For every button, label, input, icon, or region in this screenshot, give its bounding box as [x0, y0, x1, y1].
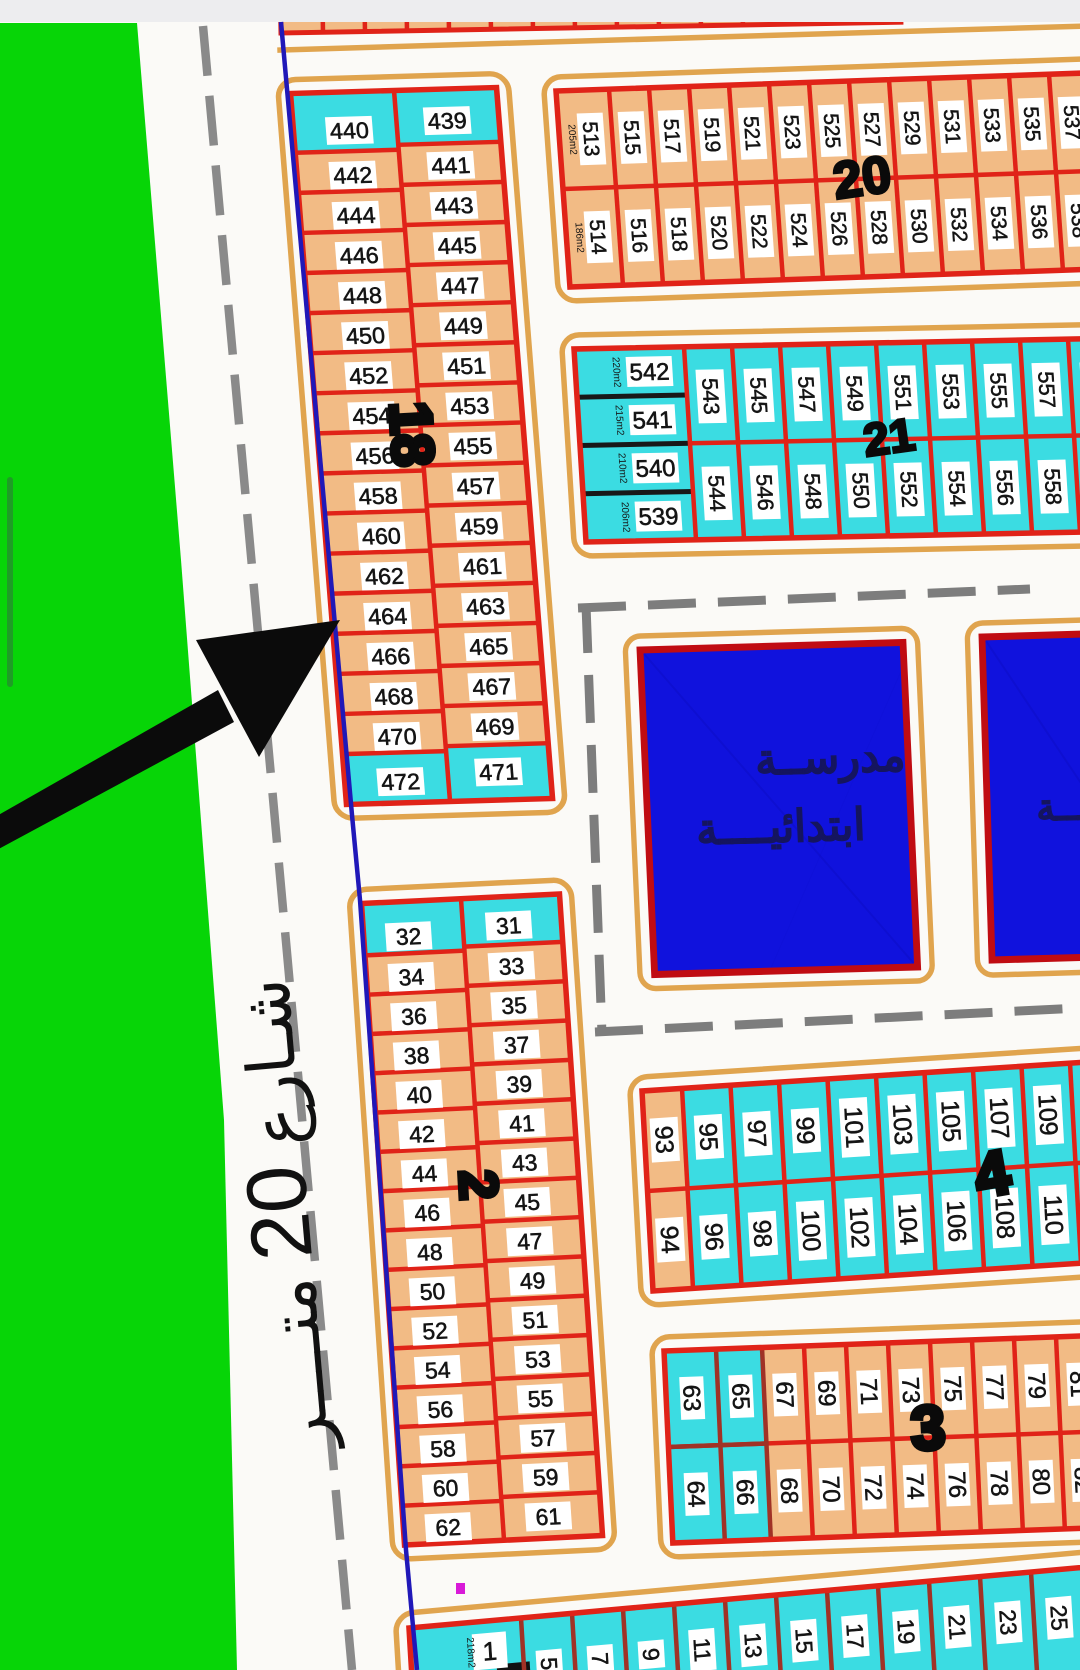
svg-text:533: 533	[979, 107, 1004, 143]
svg-text:96: 96	[699, 1222, 728, 1252]
svg-text:20: 20	[829, 145, 894, 210]
svg-text:462: 462	[364, 563, 405, 590]
svg-text:536: 536	[1026, 204, 1051, 240]
svg-text:529: 529	[899, 110, 924, 146]
svg-text:553: 553	[937, 373, 964, 410]
svg-text:70: 70	[817, 1475, 845, 1503]
svg-text:82: 82	[1069, 1466, 1080, 1494]
svg-text:218m2: 218m2	[464, 1637, 477, 1669]
svg-text:468: 468	[373, 683, 414, 710]
svg-text:41: 41	[508, 1110, 535, 1137]
svg-text:525: 525	[819, 113, 844, 149]
svg-text:555: 555	[985, 372, 1012, 409]
svg-text:47: 47	[516, 1228, 543, 1255]
svg-text:65: 65	[726, 1383, 754, 1411]
svg-text:3: 3	[909, 1393, 947, 1464]
svg-text:442: 442	[332, 162, 373, 189]
svg-text:52: 52	[421, 1317, 448, 1344]
svg-text:540: 540	[635, 455, 677, 483]
svg-text:455: 455	[452, 433, 493, 460]
svg-text:441: 441	[430, 152, 471, 179]
svg-text:21: 21	[943, 1613, 970, 1641]
svg-text:470: 470	[377, 723, 418, 750]
svg-text:531: 531	[939, 109, 964, 145]
svg-text:532: 532	[946, 207, 971, 243]
svg-text:457: 457	[456, 473, 497, 500]
svg-text:545: 545	[745, 377, 772, 414]
svg-text:527: 527	[859, 111, 884, 147]
svg-text:94: 94	[655, 1225, 684, 1255]
svg-text:467: 467	[471, 673, 512, 700]
svg-text:461: 461	[462, 553, 503, 580]
svg-text:551: 551	[889, 374, 916, 411]
svg-text:51: 51	[522, 1306, 549, 1333]
svg-text:98: 98	[747, 1219, 776, 1249]
svg-text:537: 537	[1059, 105, 1080, 141]
svg-text:544: 544	[703, 475, 730, 512]
svg-text:64: 64	[682, 1480, 710, 1508]
svg-text:105: 105	[935, 1099, 965, 1143]
svg-text:54: 54	[424, 1357, 451, 1384]
svg-text:206m2: 206m2	[619, 502, 632, 533]
svg-text:520: 520	[706, 215, 731, 251]
svg-text:55: 55	[527, 1385, 554, 1412]
svg-text:79: 79	[1022, 1372, 1050, 1400]
svg-text:528: 528	[866, 209, 891, 245]
svg-text:7: 7	[587, 1651, 614, 1666]
svg-text:446: 446	[339, 242, 380, 269]
svg-text:42: 42	[408, 1121, 435, 1148]
svg-text:53: 53	[524, 1346, 551, 1373]
svg-text:67: 67	[770, 1381, 798, 1409]
svg-text:71: 71	[854, 1378, 882, 1406]
svg-text:548: 548	[799, 473, 826, 510]
svg-text:13: 13	[739, 1631, 766, 1659]
svg-text:514: 514	[585, 219, 610, 255]
svg-text:460: 460	[361, 523, 402, 550]
svg-text:39: 39	[506, 1071, 533, 1098]
svg-text:547: 547	[793, 376, 820, 413]
svg-text:69: 69	[812, 1379, 840, 1407]
svg-text:56: 56	[427, 1396, 454, 1423]
svg-text:513: 513	[578, 121, 603, 157]
svg-text:549: 549	[841, 375, 868, 412]
svg-text:37: 37	[503, 1031, 530, 1058]
svg-text:25: 25	[1045, 1604, 1072, 1632]
svg-text:15: 15	[790, 1627, 817, 1655]
svg-text:466: 466	[370, 643, 411, 670]
svg-text:439: 439	[427, 107, 468, 134]
svg-text:451: 451	[446, 353, 487, 380]
svg-text:519: 519	[699, 117, 724, 153]
svg-text:205m2: 205m2	[565, 124, 578, 155]
svg-text:452: 452	[348, 362, 389, 389]
svg-text:72: 72	[859, 1474, 887, 1502]
svg-text:46: 46	[414, 1199, 441, 1226]
svg-text:445: 445	[437, 232, 478, 259]
svg-text:447: 447	[440, 272, 481, 299]
svg-text:444: 444	[336, 202, 377, 229]
svg-text:61: 61	[535, 1503, 562, 1530]
svg-text:449: 449	[443, 313, 484, 340]
svg-text:مدرســة: مدرســة	[754, 732, 906, 787]
svg-text:541: 541	[632, 407, 674, 435]
svg-text:517: 517	[659, 118, 684, 154]
svg-text:63: 63	[677, 1384, 705, 1412]
svg-text:80: 80	[1027, 1468, 1055, 1496]
svg-text:523: 523	[779, 114, 804, 150]
svg-text:32: 32	[395, 923, 422, 950]
svg-text:62: 62	[435, 1514, 462, 1541]
svg-text:539: 539	[638, 503, 680, 531]
svg-text:546: 546	[751, 474, 778, 511]
svg-text:448: 448	[342, 282, 383, 309]
svg-text:550: 550	[847, 472, 874, 509]
svg-text:49: 49	[519, 1267, 546, 1294]
svg-text:465: 465	[468, 633, 509, 660]
svg-text:102: 102	[844, 1206, 874, 1250]
svg-text:59: 59	[532, 1464, 559, 1491]
svg-text:552: 552	[895, 471, 922, 508]
svg-text:19: 19	[892, 1618, 919, 1646]
svg-text:100: 100	[795, 1209, 825, 1253]
svg-text:104: 104	[892, 1203, 922, 1247]
svg-text:33: 33	[498, 953, 525, 980]
svg-text:440: 440	[329, 117, 370, 144]
svg-text:36: 36	[400, 1003, 427, 1030]
svg-text:101: 101	[838, 1106, 868, 1150]
svg-text:535: 535	[1019, 106, 1044, 142]
svg-text:107: 107	[984, 1096, 1014, 1140]
svg-text:حضــانــة: حضــانــة	[1036, 782, 1080, 829]
svg-text:458: 458	[358, 483, 399, 510]
svg-text:106: 106	[941, 1199, 971, 1243]
svg-text:17: 17	[841, 1622, 868, 1650]
svg-text:556: 556	[991, 469, 1018, 506]
svg-text:543: 543	[697, 378, 724, 415]
svg-text:50: 50	[419, 1278, 446, 1305]
svg-text:459: 459	[459, 513, 500, 540]
svg-text:524: 524	[786, 212, 811, 248]
svg-text:186m2: 186m2	[572, 222, 585, 253]
svg-text:526: 526	[826, 211, 851, 247]
svg-text:34: 34	[398, 963, 425, 990]
svg-text:48: 48	[416, 1239, 443, 1266]
svg-text:534: 534	[986, 205, 1011, 241]
svg-text:530: 530	[906, 208, 931, 244]
svg-text:554: 554	[943, 470, 970, 507]
svg-text:81: 81	[1064, 1370, 1080, 1398]
svg-text:58: 58	[429, 1435, 456, 1462]
svg-text:110: 110	[1038, 1194, 1068, 1236]
svg-text:103: 103	[887, 1103, 917, 1147]
svg-text:76: 76	[943, 1471, 971, 1499]
svg-text:9: 9	[638, 1647, 665, 1662]
svg-text:18: 18	[377, 400, 445, 468]
svg-text:558: 558	[1039, 468, 1066, 505]
svg-text:453: 453	[449, 393, 490, 420]
svg-text:66: 66	[731, 1479, 759, 1507]
svg-text:443: 443	[433, 192, 474, 219]
svg-text:74: 74	[901, 1472, 929, 1500]
svg-text:78: 78	[985, 1469, 1013, 1497]
svg-text:68: 68	[775, 1477, 803, 1505]
svg-text:542: 542	[629, 359, 671, 387]
svg-text:109: 109	[1032, 1093, 1062, 1137]
svg-text:97: 97	[742, 1119, 771, 1149]
svg-text:43: 43	[511, 1149, 538, 1176]
svg-text:45: 45	[514, 1189, 541, 1216]
svg-text:99: 99	[790, 1116, 819, 1146]
svg-text:95: 95	[693, 1122, 722, 1152]
svg-text:522: 522	[746, 214, 771, 250]
svg-text:21: 21	[860, 408, 918, 467]
svg-text:31: 31	[495, 912, 522, 939]
svg-text:469: 469	[475, 713, 516, 740]
svg-text:450: 450	[345, 322, 386, 349]
svg-text:515: 515	[619, 120, 644, 156]
svg-text:464: 464	[367, 603, 408, 630]
svg-text:60: 60	[432, 1474, 459, 1501]
svg-text:516: 516	[626, 218, 651, 254]
svg-text:ابتدائيــــة: ابتدائيــــة	[695, 801, 866, 854]
svg-text:215m2: 215m2	[613, 405, 626, 436]
svg-text:77: 77	[980, 1373, 1008, 1401]
svg-text:1: 1	[482, 1636, 498, 1667]
svg-text:2: 2	[447, 1168, 508, 1201]
svg-text:23: 23	[994, 1608, 1021, 1636]
svg-text:557: 557	[1033, 371, 1060, 408]
svg-text:5: 5	[536, 1656, 563, 1670]
svg-text:210m2: 210m2	[616, 453, 629, 484]
svg-text:44: 44	[411, 1160, 438, 1187]
svg-text:471: 471	[478, 759, 519, 786]
svg-text:220m2: 220m2	[610, 357, 623, 388]
svg-text:518: 518	[666, 216, 691, 252]
svg-text:538: 538	[1066, 203, 1080, 239]
svg-text:521: 521	[739, 116, 764, 152]
svg-text:38: 38	[403, 1042, 430, 1069]
svg-text:472: 472	[380, 768, 421, 795]
svg-text:40: 40	[406, 1081, 433, 1108]
svg-text:463: 463	[465, 593, 506, 620]
svg-text:57: 57	[529, 1424, 556, 1451]
svg-text:93: 93	[649, 1125, 678, 1155]
svg-text:11: 11	[688, 1637, 715, 1663]
svg-text:35: 35	[500, 992, 527, 1019]
